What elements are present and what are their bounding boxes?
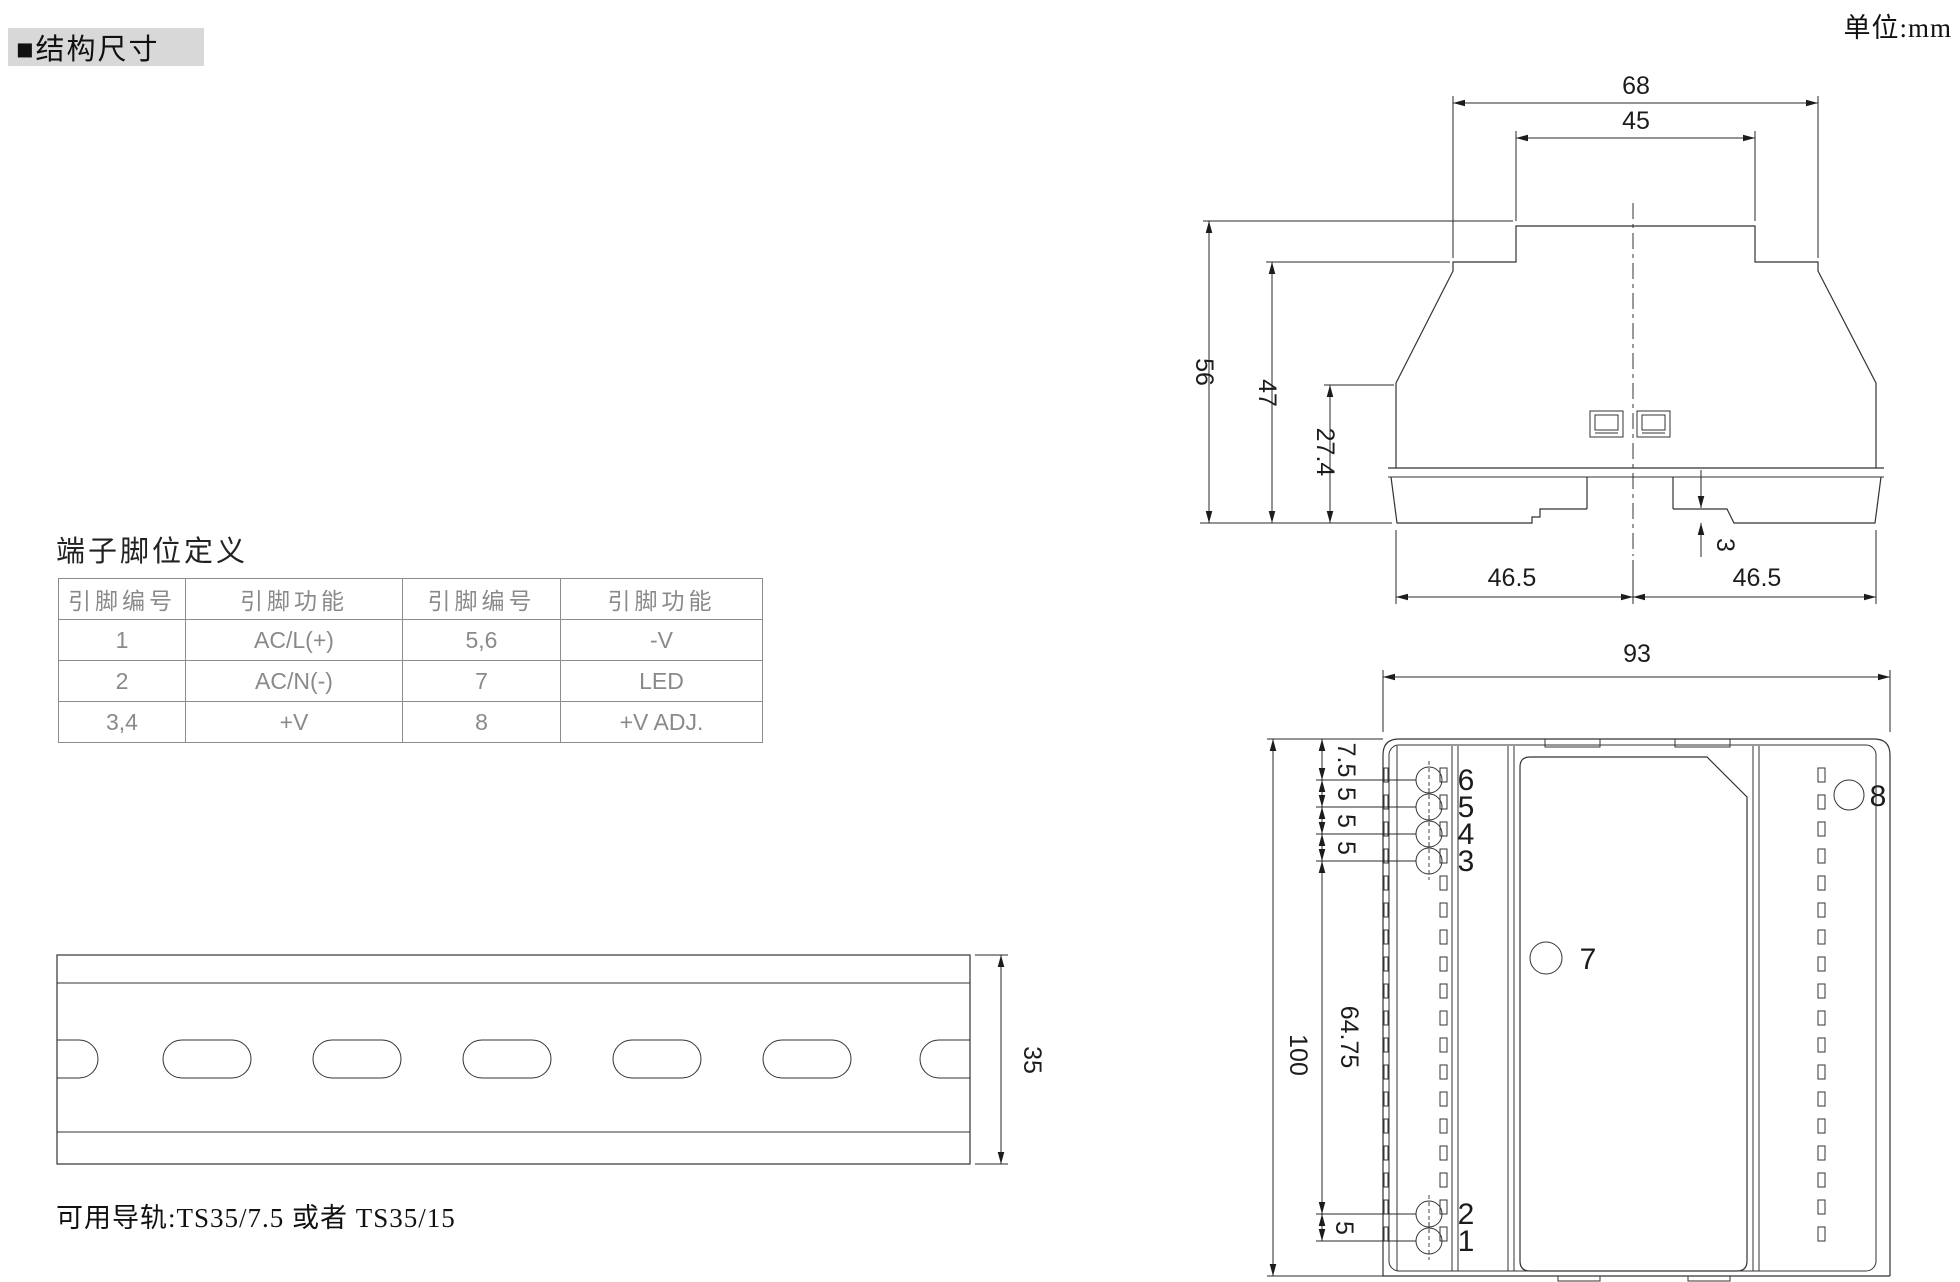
din-rail-view: 35 bbox=[57, 955, 1046, 1164]
dim-27-4: 27.4 bbox=[1311, 385, 1394, 523]
bottom-tab bbox=[1688, 1276, 1730, 1281]
label-plate bbox=[1520, 757, 1747, 1271]
pin-circle-4 bbox=[1416, 815, 1442, 853]
rail-slots bbox=[57, 1040, 970, 1078]
dim-label-5b: 5 bbox=[1332, 814, 1360, 828]
top-profile-view: 68 45 56 47 bbox=[1190, 72, 1884, 604]
dim-label-35: 35 bbox=[1018, 1046, 1046, 1074]
dim-label-3: 3 bbox=[1711, 538, 1739, 552]
pin-circle-3 bbox=[1416, 842, 1442, 880]
pin-label-1: 1 bbox=[1458, 1225, 1475, 1258]
top-notch bbox=[1675, 739, 1730, 747]
dim-3: 3 bbox=[1701, 470, 1739, 557]
dim-56: 56 bbox=[1190, 221, 1513, 523]
pin-dimension-chain: 7.5 5 5 5 64.75 5 bbox=[1316, 739, 1416, 1241]
dim-label-5c: 5 bbox=[1332, 841, 1360, 855]
dim-label-56: 56 bbox=[1190, 358, 1218, 386]
din-clip-base bbox=[1391, 477, 1881, 523]
dim-label-7-5: 7.5 bbox=[1332, 743, 1360, 778]
dim-45: 45 bbox=[1516, 107, 1755, 221]
clip-windows bbox=[1590, 411, 1670, 437]
front-internal-lines bbox=[1397, 746, 1759, 1271]
dim-label-68: 68 bbox=[1622, 72, 1650, 100]
pin-circle-2 bbox=[1416, 1195, 1442, 1233]
pin-label-3: 3 bbox=[1458, 845, 1475, 878]
top-view-outline bbox=[1396, 226, 1876, 468]
adj-potentiometer-circle bbox=[1834, 780, 1864, 810]
dim-label-46-5-right: 46.5 bbox=[1733, 564, 1782, 592]
dim-label-64-75: 64.75 bbox=[1335, 1006, 1363, 1069]
dim-47: 47 bbox=[1253, 262, 1450, 523]
dim-label-93: 93 bbox=[1623, 640, 1651, 668]
dimension-drawings: 68 45 56 47 bbox=[0, 0, 1960, 1282]
led-indicator-circle bbox=[1530, 942, 1562, 974]
dim-100: 100 bbox=[1267, 739, 1383, 1276]
top-notch bbox=[1545, 739, 1600, 747]
dim-label-46-5-left: 46.5 bbox=[1488, 564, 1537, 592]
drawing-page: ■结构尺寸 单位:mm 端子脚位定义 引脚编号 引脚功能 引脚编号 引脚功能 1… bbox=[0, 0, 1960, 1282]
dim-label-5d: 5 bbox=[1330, 1221, 1358, 1235]
pin-circle-6 bbox=[1416, 761, 1442, 799]
pin-circle-1 bbox=[1416, 1222, 1442, 1260]
dim-label-47: 47 bbox=[1253, 379, 1281, 407]
dim-93: 93 bbox=[1383, 640, 1890, 732]
adj-label-8: 8 bbox=[1870, 780, 1887, 813]
rail-outline bbox=[57, 955, 970, 1164]
front-face-view: 6 5 4 3 2 1 7 8 93 bbox=[1267, 640, 1890, 1281]
dim-label-27-4: 27.4 bbox=[1311, 428, 1339, 477]
bottom-tab bbox=[1558, 1276, 1600, 1281]
dim-label-5a: 5 bbox=[1332, 787, 1360, 801]
dim-35: 35 bbox=[975, 955, 1046, 1164]
dim-46-5: 46.5 46.5 bbox=[1396, 530, 1876, 604]
led-label-7: 7 bbox=[1580, 943, 1597, 976]
dim-label-45: 45 bbox=[1622, 107, 1650, 135]
dim-68: 68 bbox=[1453, 72, 1818, 258]
dim-label-100: 100 bbox=[1284, 1034, 1312, 1076]
pin-circle-5 bbox=[1416, 788, 1442, 826]
